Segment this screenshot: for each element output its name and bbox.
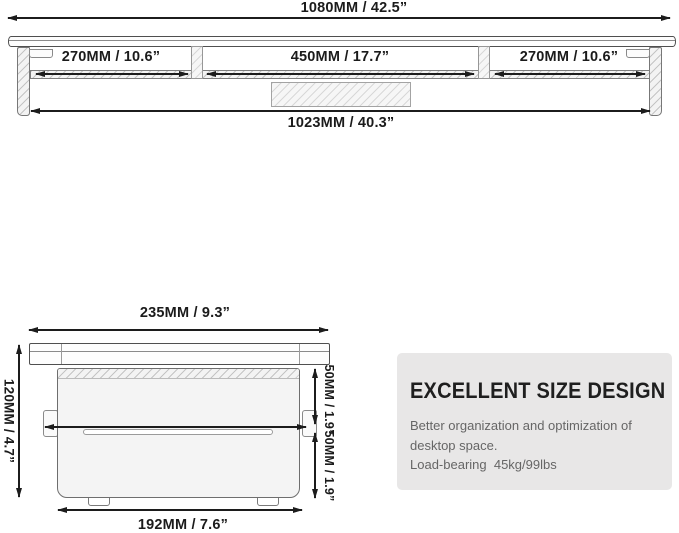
info-panel-line-2: desktop space. [410, 436, 659, 456]
total-height-arrow [18, 345, 20, 497]
total-height-label: 120MM / 4.7” [1, 379, 16, 463]
right-leg [649, 47, 662, 116]
top-depth-label: 235MM / 9.3” [140, 306, 230, 322]
base-width-arrow [31, 110, 650, 112]
info-panel: EXCELLENT SIZE DESIGN Better organizatio… [397, 353, 672, 490]
lower-opening-arrow [314, 433, 316, 498]
board-edge-line [30, 351, 329, 352]
right-shelf-width-arrow [495, 73, 645, 75]
top-depth-arrow [29, 329, 328, 331]
info-panel-heading: EXCELLENT SIZE DESIGN [410, 379, 659, 405]
info-panel-body: Better organization and optimization of … [410, 416, 659, 475]
base-depth-label: 192MM / 7.6” [138, 518, 228, 533]
info-panel-line-1: Better organization and optimization of [410, 416, 659, 436]
product-dimension-sheet: 1080MM / 42.5” 270MM / 10.6” 450MM / 17.… [0, 0, 679, 533]
side-top-board [29, 343, 330, 365]
right-corner-bracket [626, 49, 650, 58]
middle-shelf-width-arrow [207, 73, 474, 75]
info-panel-line-3: Load-bearing 45kg/99lbs [410, 455, 659, 475]
left-shelf-width-arrow [36, 73, 188, 75]
upper-opening-label: 50MM / 1.9” [321, 365, 335, 436]
upper-opening-arrow [314, 369, 316, 424]
right-divider-post [478, 46, 490, 79]
left-divider-post [191, 46, 203, 79]
lower-opening-label: 50MM / 1.9” [321, 431, 335, 502]
drawer-slot [83, 429, 273, 435]
overall-width-arrow [8, 17, 670, 19]
side-body-hatch-strip [58, 369, 299, 379]
center-drawer-front [271, 82, 411, 107]
board-right-joint-line [299, 344, 300, 364]
base-depth-arrow [58, 509, 302, 511]
top-shelf-board [8, 36, 676, 47]
left-corner-bracket [29, 49, 53, 58]
board-left-joint-line [61, 344, 62, 364]
lower-shelf-board [30, 70, 650, 79]
inner-depth-arrow [45, 426, 306, 428]
left-leg [17, 47, 30, 116]
